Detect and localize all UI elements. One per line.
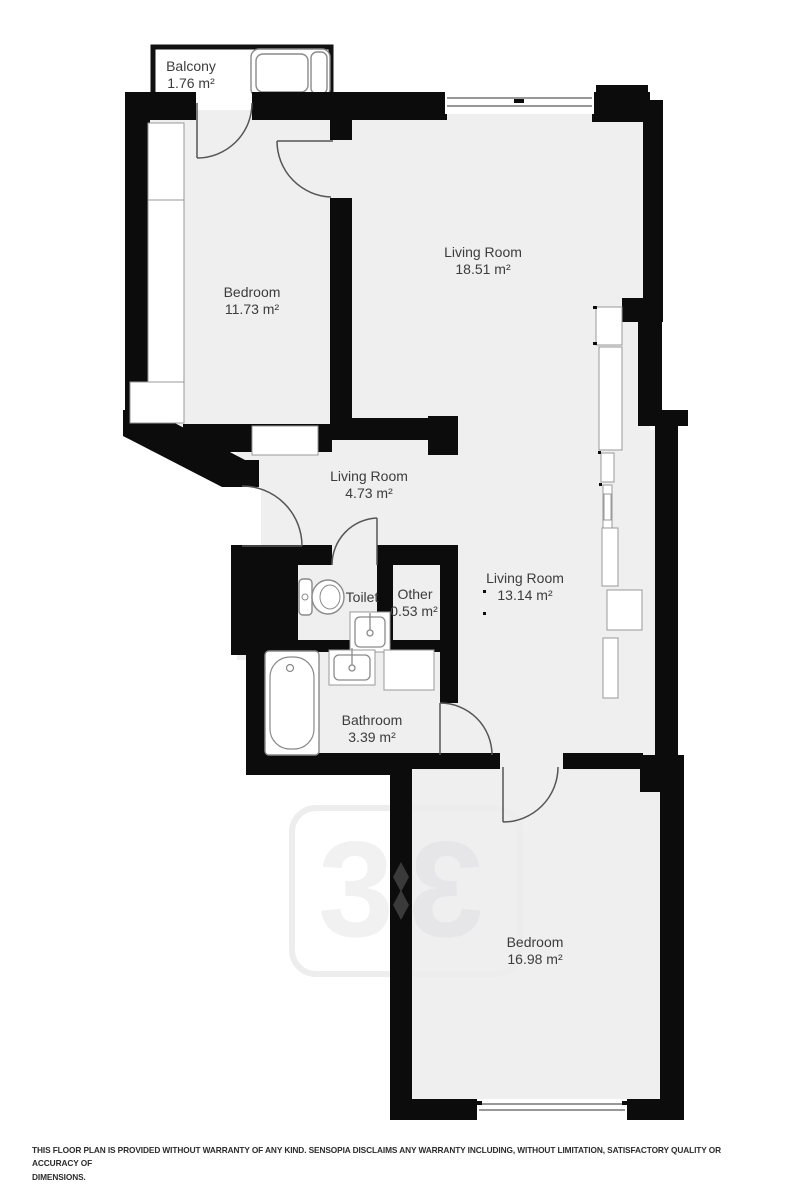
disclaimer-line-2: DIMENSIONS. <box>32 1172 86 1182</box>
watermark-glyph-right: 3 <box>408 813 484 965</box>
wall-left <box>125 96 150 426</box>
room-area: 16.98 m² <box>507 951 563 967</box>
wall-bathroom-right <box>440 652 458 703</box>
label-other: Other 0.53 m² <box>390 586 438 619</box>
closet-segment-3 <box>130 382 184 423</box>
wall-corridor-top <box>332 418 443 440</box>
wall-toilet-top <box>231 545 332 565</box>
entry-door-opening <box>231 487 261 545</box>
disclaimer-line-1: THIS FLOOR PLAN IS PROVIDED WITHOUT WARR… <box>32 1145 721 1168</box>
label-toilet: Toilet <box>346 589 379 605</box>
kitchen-sink-basin <box>604 494 611 520</box>
wall-other-right <box>440 545 458 652</box>
kitchen-stove <box>607 590 642 630</box>
floor-plan-drawing: 3 3 <box>0 0 800 1200</box>
wall-top-right-corner <box>596 85 648 122</box>
label-bedroom-2: Bedroom 16.98 m² <box>507 934 564 967</box>
label-bedroom-1: Bedroom 11.73 m² <box>224 284 281 317</box>
wall-bathroom-bottom <box>246 753 412 775</box>
room-area: 4.73 m² <box>345 485 393 501</box>
room-area: 18.51 m² <box>455 261 511 277</box>
room-name: Other <box>397 586 432 602</box>
sofa-icon <box>251 49 330 97</box>
wall-bedroom2-top-1 <box>400 753 500 769</box>
floor-top-section <box>150 110 650 452</box>
room-name: Bathroom <box>342 712 403 728</box>
label-bathroom: Bathroom 3.39 m² <box>342 712 403 745</box>
wall-bedroom2-bottom <box>390 1099 477 1120</box>
room-area: 13.14 m² <box>497 587 553 603</box>
toilet-sink-icon <box>350 612 390 652</box>
wall-right-step <box>622 298 663 322</box>
floor-living-lower <box>440 650 655 762</box>
wall-right-3 <box>655 426 678 770</box>
room-name: Living Room <box>486 570 564 586</box>
wall-stub <box>428 416 458 455</box>
bathroom-sink-icon <box>329 648 375 685</box>
label-living-room-1: Living Room 18.51 m² <box>444 244 522 277</box>
wall-bedroom2-right <box>660 755 684 1120</box>
window-bottom <box>477 1099 627 1120</box>
wall-entry-upper <box>231 460 259 487</box>
room-area: 1.76 m² <box>167 75 215 91</box>
wall-bedroom2-notch <box>640 755 662 792</box>
floor-plan-page: 3 3 <box>0 0 800 1200</box>
closet-segment-1 <box>148 123 184 200</box>
room-area: 0.53 m² <box>390 603 438 619</box>
room-area: 3.39 m² <box>348 729 396 745</box>
room-name: Living Room <box>444 244 522 260</box>
room-name: Bedroom <box>224 284 281 300</box>
wall-right-1 <box>643 100 663 305</box>
room-name: Balcony <box>166 58 216 74</box>
watermark-glyph-left: 3 <box>318 813 394 965</box>
kitchen-counter-5 <box>603 638 618 698</box>
wall-bottom-right-corner <box>627 1099 678 1120</box>
closet-segment-2 <box>148 200 184 382</box>
kitchen-counter-3 <box>601 453 614 482</box>
wall-divider-lower <box>330 198 352 426</box>
wall-right-2 <box>638 322 662 414</box>
washer-icon <box>384 650 434 690</box>
label-living-room-3: Living Room 13.14 m² <box>486 570 564 603</box>
kitchen-counter-1 <box>596 307 622 345</box>
bathtub-icon <box>265 651 319 755</box>
bedroom-corridor-opening <box>252 426 318 455</box>
room-name: Living Room <box>330 468 408 484</box>
room-name: Toilet <box>346 589 379 605</box>
kitchen-counter-4 <box>602 528 618 586</box>
window-top <box>445 90 594 114</box>
room-name: Bedroom <box>507 934 564 950</box>
wall-divider-upper <box>330 96 352 140</box>
kitchen-counter-2 <box>599 347 622 450</box>
wall-bedroom2-top-2 <box>563 753 643 769</box>
room-area: 11.73 m² <box>225 301 280 317</box>
toilet-icon <box>299 579 344 615</box>
disclaimer-text: THIS FLOOR PLAN IS PROVIDED WITHOUT WARR… <box>32 1144 756 1184</box>
wall-bedroom2-left <box>390 755 412 1120</box>
wall-right-jog <box>638 410 688 426</box>
label-balcony: Balcony 1.76 m² <box>166 58 216 91</box>
